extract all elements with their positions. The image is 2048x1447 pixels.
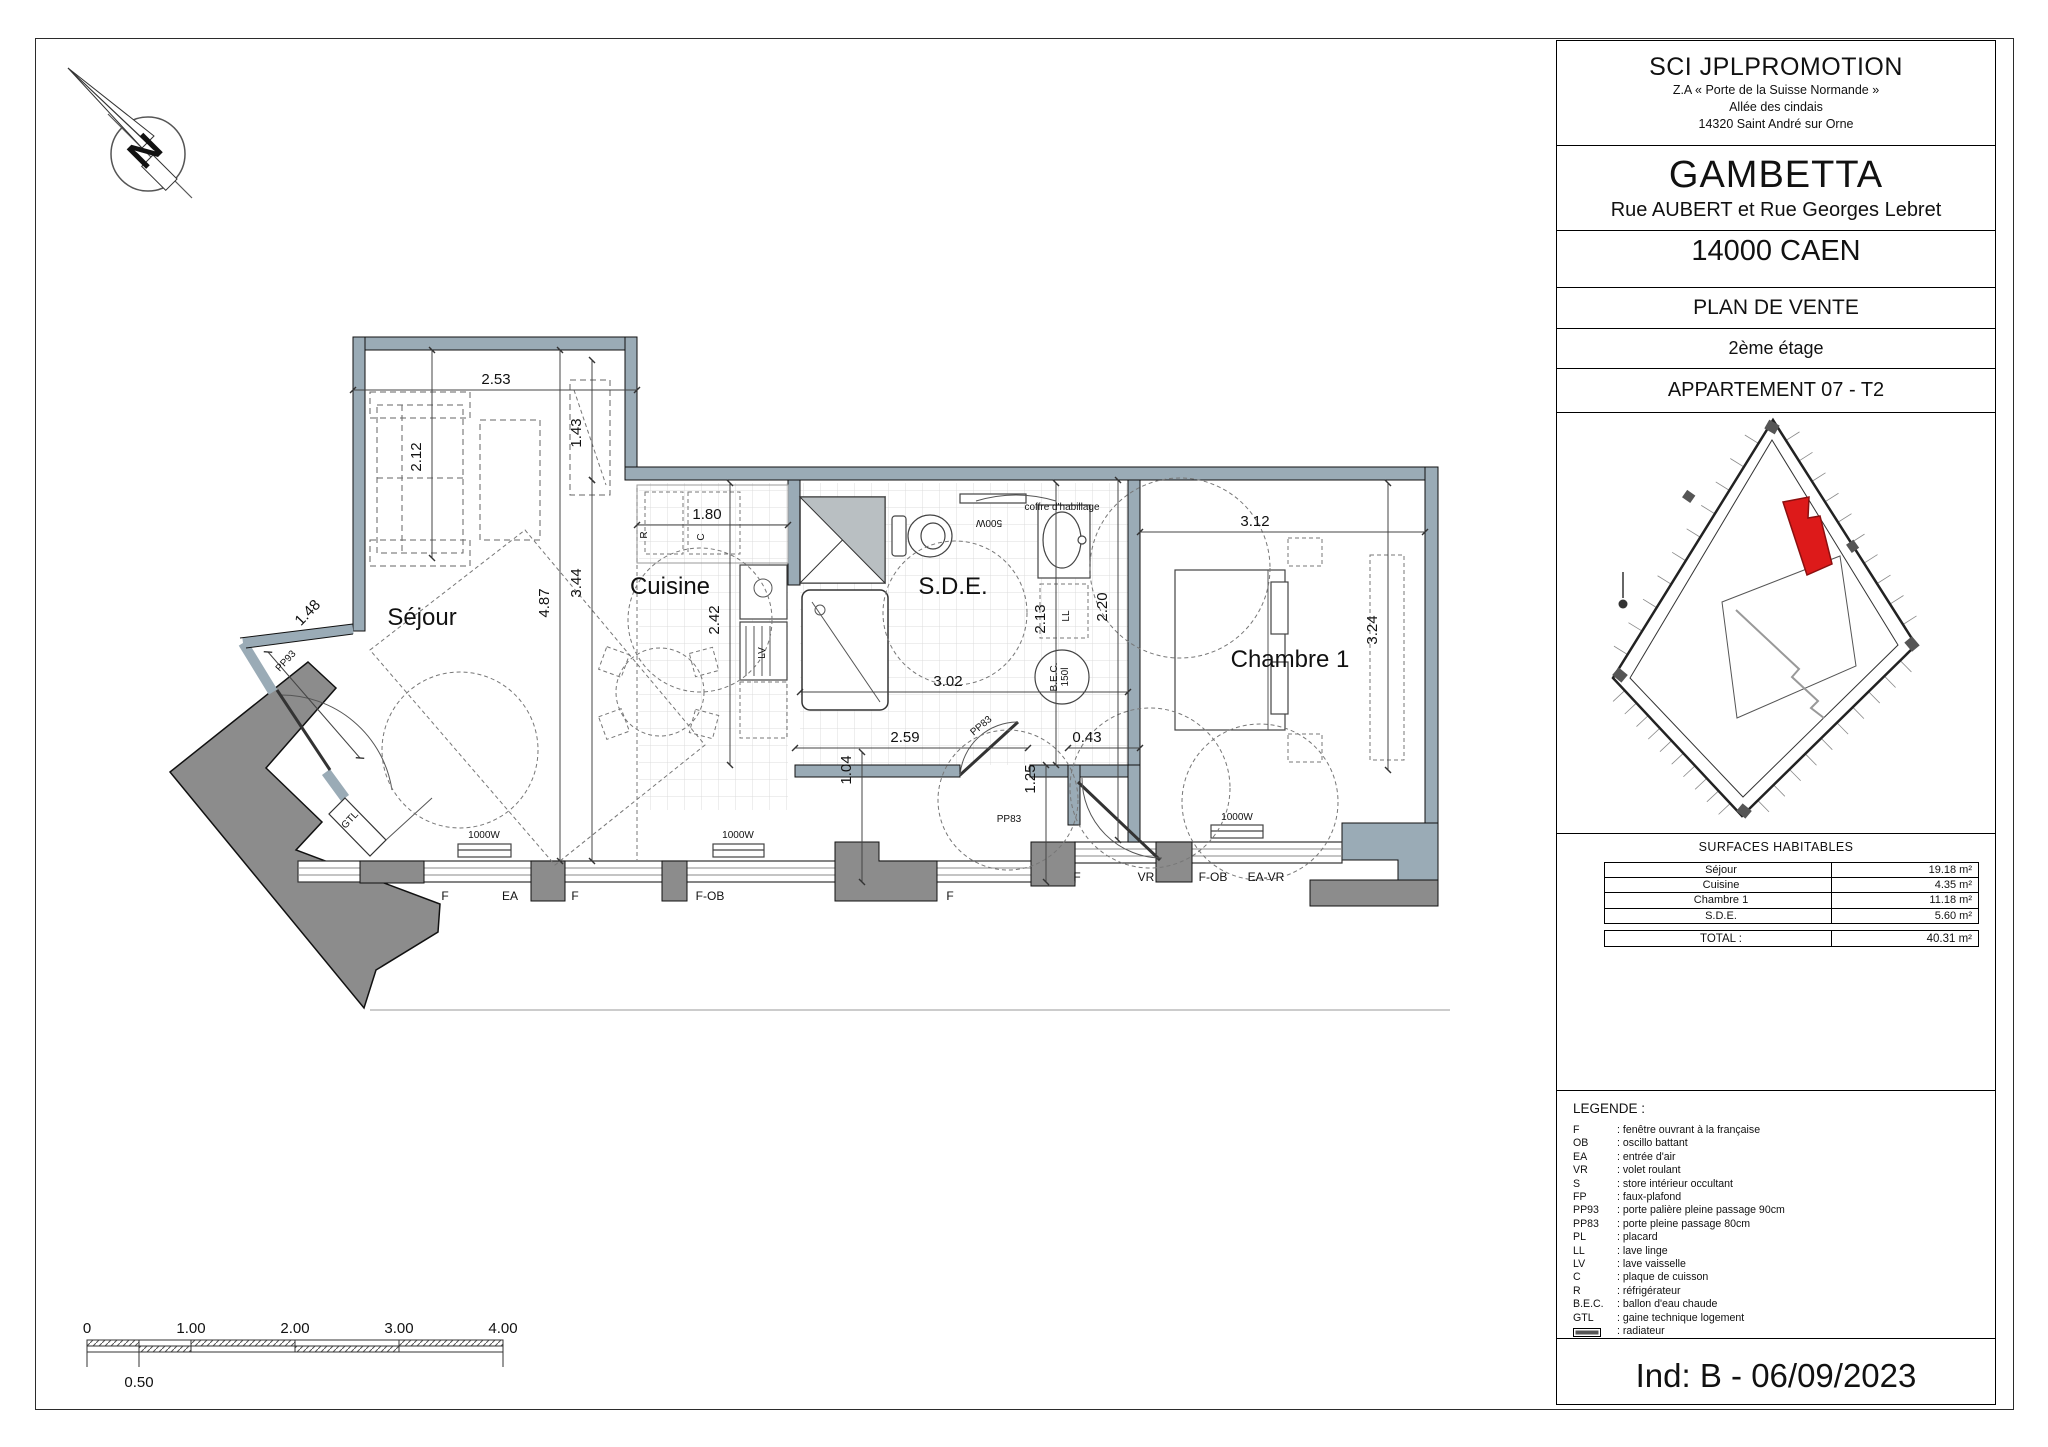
plan-de-vente-sheet: { "colors":{"wall":"#9aabb6","dark":"#8c…: [0, 0, 2048, 1447]
title-row-company: SCI JPLPROMOTION Z.A « Porte de la Suiss…: [1557, 41, 1995, 146]
scale-tick: 1.00: [176, 1320, 205, 1337]
unit-division-line: [1628, 622, 1642, 630]
legend-row: B.E.C.: ballon d'eau chaude: [1573, 1298, 1985, 1311]
window-label: F: [441, 889, 448, 903]
scale-bar-graphic: [87, 1340, 503, 1367]
unit-division-line: [1660, 740, 1672, 751]
surfaces-header: SURFACES HABITABLES: [1557, 840, 1995, 854]
dimension-label: 3.02: [933, 673, 962, 690]
title-row-city: 14000 CAEN: [1557, 231, 1995, 288]
scale-tick: 2.00: [280, 1320, 309, 1337]
legend-desc: : plaque de cuisson: [1617, 1271, 1985, 1284]
unit-division-line: [1821, 738, 1832, 749]
unit-division-line: [1799, 452, 1813, 461]
unit-division-line: [1719, 803, 1731, 814]
equipment-label: B.E.C.: [1049, 663, 1060, 692]
equipment-label: 150l: [1060, 668, 1071, 687]
surfaces-table: Séjour19.18 m²Cuisine4.35 m²Chambre 111.…: [1604, 862, 1979, 947]
room-label: Chambre 1: [1231, 646, 1350, 673]
title-row-project: GAMBETTA Rue AUBERT et Rue Georges Lebre…: [1557, 146, 1995, 231]
corner-mass: [1310, 880, 1438, 906]
unit-division-line: [1614, 646, 1628, 654]
legend-desc: : porte palière pleine passage 90cm: [1617, 1204, 1985, 1217]
dimension-label: 1.43: [568, 418, 585, 447]
surface-label: S.D.E.: [1605, 909, 1832, 924]
room-label: S.D.E.: [918, 573, 987, 600]
wardrobe: [1370, 555, 1404, 760]
equipment-label: 500W: [975, 517, 1002, 528]
equipment-label: LV: [757, 647, 768, 659]
unit-division-line: [1648, 728, 1660, 739]
dimension-label: 0.43: [1072, 729, 1101, 746]
surface-label: Séjour: [1605, 863, 1832, 877]
dimension-label: 1.80: [692, 506, 721, 523]
legend-desc: : porte pleine passage 80cm: [1617, 1218, 1985, 1231]
unit-division-line: [1701, 505, 1715, 513]
dimension-label: 2.12: [408, 442, 425, 471]
legend-abbr: LV: [1573, 1258, 1617, 1271]
equipment-label: 1000W: [1221, 812, 1253, 823]
surface-value: 19.18 m²: [1832, 863, 1978, 877]
legend-rows: F: fenêtre ouvrant à la françaiseOB: osc…: [1573, 1124, 1985, 1342]
legend-abbr: C: [1573, 1271, 1617, 1284]
window-label: EA-VR: [1248, 870, 1285, 884]
legend-row: S: store intérieur occultant: [1573, 1178, 1985, 1191]
gtl-closet: [329, 798, 386, 856]
title-block: SCI JPLPROMOTION Z.A « Porte de la Suiss…: [1556, 40, 1996, 1405]
legend-desc: : entrée d'air: [1617, 1151, 1985, 1164]
window-label: F: [946, 889, 953, 903]
surface-value: 11.18 m²: [1832, 893, 1978, 908]
washbasin: [1038, 505, 1090, 578]
scale-bar-labels: 01.002.003.004.000.50: [83, 1320, 518, 1391]
unit-division-line: [1786, 431, 1800, 440]
legend-abbr: F: [1573, 1124, 1617, 1137]
window-label: F-OB: [1199, 870, 1228, 884]
legend-abbr: B.E.C.: [1573, 1298, 1617, 1311]
floor-label: 2ème étage: [1728, 338, 1823, 359]
unit-division-line: [1900, 660, 1911, 671]
legend-desc: : réfrigérateur: [1617, 1285, 1985, 1298]
legend-desc: : store intérieur occultant: [1617, 1178, 1985, 1191]
unit-division-line: [1903, 615, 1917, 624]
window-label: F: [1073, 870, 1080, 884]
title-row-apartment: APPARTEMENT 07 - T2: [1557, 369, 1995, 413]
equipment-label: LL: [1061, 610, 1072, 622]
legend-desc: : placard: [1617, 1231, 1985, 1244]
surfaces-total-value: 40.31 m²: [1832, 931, 1978, 946]
unit-division-line: [1869, 691, 1880, 702]
legend-abbr: LL: [1573, 1245, 1617, 1258]
legend-abbr: VR: [1573, 1164, 1617, 1177]
apartment-label: APPARTEMENT 07 - T2: [1668, 379, 1884, 402]
dimension-label: 3.44: [568, 568, 585, 597]
surfaces-total-row: TOTAL : 40.31 m²: [1604, 930, 1979, 947]
window-label: F: [571, 889, 578, 903]
unit-division-line: [1687, 528, 1701, 536]
gtl-door-leaf: [386, 798, 432, 840]
legend-row: LL: lave linge: [1573, 1245, 1985, 1258]
unit-division-line: [1672, 552, 1686, 560]
legend-abbr: OB: [1573, 1137, 1617, 1150]
surfaces-total-label: TOTAL :: [1605, 931, 1832, 946]
surfaces-row: Séjour19.18 m²: [1604, 862, 1979, 878]
unit-division-line: [1658, 575, 1672, 583]
unit-division-line: [1730, 458, 1744, 466]
unit-division-line: [1789, 769, 1800, 780]
room-label: Cuisine: [630, 573, 710, 600]
dimension-label: 1.25: [1022, 764, 1039, 793]
project-name: GAMBETTA: [1669, 154, 1883, 197]
duct-shaft: [800, 497, 885, 583]
surface-label: Cuisine: [1605, 878, 1832, 893]
revision-cell: Ind: B - 06/09/2023: [1557, 1339, 1995, 1412]
radiator-symbol-icon: [1573, 1325, 1617, 1341]
dimension-label: 3.12: [1240, 513, 1269, 530]
unit-division-line: [1636, 715, 1648, 726]
revision-label: Ind: B - 06/09/2023: [1636, 1357, 1917, 1395]
scale-tick: 4.00: [488, 1320, 517, 1337]
unit-division-line: [1613, 690, 1625, 701]
dimension-label: 3.24: [1364, 615, 1381, 644]
legend-row: EA: entrée d'air: [1573, 1151, 1985, 1164]
dimension-label: 1.04: [838, 755, 855, 784]
equipment-label: coffre d'habillage: [1024, 502, 1100, 513]
unit-division-line: [1884, 676, 1895, 687]
equipment-label: PP83: [997, 814, 1022, 825]
locator-cell: [1557, 413, 1995, 834]
dimension-label: 1.48: [292, 596, 325, 629]
legend-abbr: EA: [1573, 1151, 1617, 1164]
legend-cell: LEGENDE : F: fenêtre ouvrant à la frança…: [1557, 1090, 1995, 1339]
surfaces-row: S.D.E.5.60 m²: [1604, 909, 1979, 925]
room-label: Séjour: [387, 604, 456, 631]
equipment-label: C: [696, 533, 707, 540]
legend-row: PP93: porte palière pleine passage 90cm: [1573, 1204, 1985, 1217]
legend-row: R: réfrigérateur: [1573, 1285, 1985, 1298]
scale-half-tick: 0.50: [124, 1374, 153, 1391]
company-name: SCI JPLPROMOTION: [1649, 53, 1903, 82]
unit-division-line: [1758, 800, 1769, 811]
window-label: VR: [1138, 870, 1155, 884]
legend-abbr: FP: [1573, 1191, 1617, 1204]
title-row-floor: 2ème étage: [1557, 329, 1995, 369]
legend-desc: : lave vaisselle: [1617, 1258, 1985, 1271]
unit-division-line: [1853, 707, 1864, 718]
sejour-table: [480, 420, 540, 540]
toilet: [892, 515, 952, 557]
legend-desc: : ballon d'eau chaude: [1617, 1298, 1985, 1311]
floor-plan: SéjourCuisineS.D.E.Chambre 12.532.121.43…: [140, 320, 1460, 1030]
legend-desc: : fenêtre ouvrant à la française: [1617, 1124, 1985, 1137]
surfaces-row: Cuisine4.35 m²: [1604, 878, 1979, 894]
unit-division-line: [1683, 765, 1695, 776]
equipment-label: R: [639, 531, 650, 538]
legend-row: VR: volet roulant: [1573, 1164, 1985, 1177]
company-address-1: Z.A « Porte de la Suisse Normande »: [1673, 82, 1879, 99]
company-address-2: Allée des cindais: [1729, 99, 1823, 116]
dimension-label: 2.42: [706, 605, 723, 634]
legend-abbr: GTL: [1573, 1312, 1617, 1325]
legend-row: : radiateur: [1573, 1325, 1985, 1341]
surface-value: 4.35 m²: [1832, 878, 1978, 893]
unit-division-line: [1812, 472, 1826, 481]
unit-division-line: [1643, 599, 1657, 607]
legend-desc: : volet roulant: [1617, 1164, 1985, 1177]
unit-division-line: [1716, 481, 1730, 489]
legend-desc: : faux-plafond: [1617, 1191, 1985, 1204]
document-type: PLAN DE VENTE: [1693, 296, 1859, 320]
unit-division-line: [1625, 703, 1637, 714]
surfaces-row: Chambre 111.18 m²: [1604, 893, 1979, 909]
surface-label: Chambre 1: [1605, 893, 1832, 908]
scale-bar: 01.002.003.004.000.50: [60, 1295, 560, 1405]
company-address-3: 14320 Saint André sur Orne: [1699, 116, 1854, 133]
legend-row: FP: faux-plafond: [1573, 1191, 1985, 1204]
legend-row: OB: oscillo battant: [1573, 1137, 1985, 1150]
unit-division-line: [1877, 575, 1891, 584]
legend-row: PL: placard: [1573, 1231, 1985, 1244]
scale-tick: 0: [83, 1320, 91, 1337]
north-compass-icon: N: [50, 52, 225, 222]
dimension-label: 2.20: [1094, 592, 1111, 621]
dimension-label: 2.59: [890, 729, 919, 746]
equipment-label: PP93: [274, 648, 299, 674]
legend-abbr: S: [1573, 1178, 1617, 1191]
equipment-label: 1000W: [468, 830, 500, 841]
legend-row: GTL: gaine technique logement: [1573, 1312, 1985, 1325]
project-street: Rue AUBERT et Rue Georges Lebret: [1611, 199, 1942, 222]
legend-abbr: PL: [1573, 1231, 1617, 1244]
unit-division-line: [1695, 778, 1707, 789]
unit-division-line: [1837, 722, 1848, 733]
window-label: EA: [502, 889, 518, 903]
window-label: F-OB: [696, 889, 725, 903]
key-plan-north-pin: [1619, 572, 1628, 609]
unit-division-line: [1838, 513, 1852, 522]
unit-division-line: [1745, 435, 1759, 443]
radiator-symbol-icon: [1573, 1328, 1601, 1337]
party-wall-mass: [170, 662, 440, 1008]
unit-division-line: [1707, 790, 1719, 801]
unit-division-line: [1774, 784, 1785, 795]
surfaces-total: TOTAL : 40.31 m²: [1604, 930, 1979, 947]
scale-tick: 3.00: [384, 1320, 413, 1337]
sofa: [370, 392, 470, 566]
building-key-plan: [1556, 414, 1996, 833]
dimension-label: 4.87: [536, 588, 553, 617]
legend-desc: : oscillo battant: [1617, 1137, 1985, 1150]
title-row-doctype: PLAN DE VENTE: [1557, 288, 1995, 329]
unit-division-line: [1672, 753, 1684, 764]
legend-abbr: PP93: [1573, 1204, 1617, 1217]
legend-row: PP83: porte pleine passage 80cm: [1573, 1218, 1985, 1231]
dimension-label: 2.53: [481, 371, 510, 388]
legend-abbr: PP83: [1573, 1218, 1617, 1231]
legend-desc: : gaine technique logement: [1617, 1312, 1985, 1325]
surfaces-rows: Séjour19.18 m²Cuisine4.35 m²Chambre 111.…: [1604, 862, 1979, 924]
dimension-label: 2.13: [1032, 604, 1049, 633]
unit-division-line: [1805, 753, 1816, 764]
surfaces-cell: SURFACES HABITABLES Séjour19.18 m²Cuisin…: [1557, 840, 1995, 1090]
legend-desc: : lave linge: [1617, 1245, 1985, 1258]
unit-division-line: [1825, 493, 1839, 502]
unit-division-line: [1890, 595, 1904, 604]
legend-row: C: plaque de cuisson: [1573, 1271, 1985, 1284]
legend-abbr: R: [1573, 1285, 1617, 1298]
unit-division-line: [1864, 554, 1878, 563]
legend-row: F: fenêtre ouvrant à la française: [1573, 1124, 1985, 1137]
legend-row: LV: lave vaisselle: [1573, 1258, 1985, 1271]
legend-desc: : radiateur: [1617, 1325, 1985, 1341]
project-city: 14000 CAEN: [1691, 235, 1860, 268]
surface-value: 5.60 m²: [1832, 909, 1978, 924]
legend-title: LEGENDE :: [1573, 1101, 1985, 1116]
equipment-label: 1000W: [722, 830, 754, 841]
